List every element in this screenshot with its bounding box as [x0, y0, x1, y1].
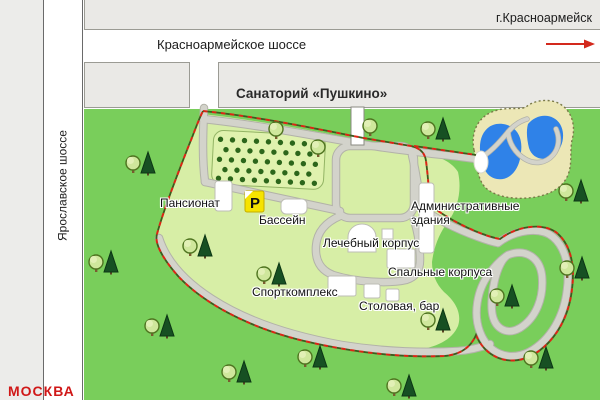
stolovaya-building-1: [364, 284, 380, 298]
forest-area: [84, 109, 600, 400]
orchard-trees: [216, 137, 320, 187]
label-lechebny-korpus: Лечебный корпус: [323, 236, 419, 250]
left-margin: [0, 0, 44, 400]
deciduous-tree: [145, 319, 159, 336]
conifer-tree: [436, 118, 450, 142]
deciduous-tree: [387, 379, 401, 396]
label-admin-line2: здания: [411, 213, 450, 227]
conifer-tree: [505, 285, 519, 309]
city-block-left: [84, 62, 190, 108]
label-admin-line1: Административные: [411, 199, 519, 213]
trees-layer: [89, 118, 589, 399]
deciduous-tree: [126, 156, 140, 173]
resort-title: Санаторий «Пушкино»: [236, 86, 387, 101]
deciduous-tree: [298, 350, 312, 367]
deciduous-tree: [257, 267, 271, 284]
conifer-tree: [237, 361, 251, 385]
deciduous-tree: [559, 184, 573, 201]
label-bassein: Бассейн: [259, 213, 306, 227]
conifer-tree: [272, 263, 286, 287]
pond: [473, 100, 573, 198]
conifer-tree: [104, 251, 118, 275]
deciduous-tree: [421, 122, 435, 139]
label-stolovaya-bar: Столовая, бар: [359, 299, 439, 313]
conifer-tree: [160, 315, 174, 339]
conifer-tree: [575, 257, 589, 281]
deciduous-tree: [421, 313, 435, 330]
sanatorium-territory: [157, 114, 459, 351]
deciduous-tree: [89, 255, 103, 272]
moscow-direction-label: МОСКВА: [8, 383, 75, 399]
deciduous-tree: [524, 351, 538, 368]
krasnoarmeysk-city-label: г.Красноармейск: [496, 11, 592, 25]
conifer-tree: [574, 180, 588, 204]
label-spalnye-korpusa: Спальные корпуса: [388, 265, 492, 279]
parking-sign: P: [245, 191, 264, 212]
city-block-right: [218, 62, 600, 108]
orchard: [211, 130, 326, 190]
pond-water-left: [480, 124, 521, 179]
pond-beach: [474, 151, 488, 173]
conifer-tree: [402, 375, 416, 399]
parking-letter: P: [250, 195, 260, 212]
entrance-road: [351, 107, 364, 145]
deciduous-tree: [222, 365, 236, 382]
yaroslavskoe-highway-label: Ярославское шоссе: [56, 121, 71, 251]
roads: [159, 108, 568, 356]
label-sportkompleks: Спорткомплекс: [252, 285, 338, 299]
conifer-tree: [198, 235, 212, 259]
label-pansionat: Пансионат: [160, 196, 220, 210]
deciduous-tree: [269, 122, 283, 139]
roads-casing: [159, 108, 568, 356]
conifer-tree: [313, 346, 327, 370]
deciduous-tree: [183, 239, 197, 256]
deciduous-tree: [311, 140, 325, 157]
map-screenshot: Ярославское шоссе МОСКВА г.Красноармейск…: [0, 0, 600, 400]
conifer-tree: [539, 347, 553, 371]
direction-arrow: [546, 40, 595, 49]
pond-water-right: [527, 116, 563, 159]
deciduous-tree: [363, 119, 377, 136]
krasnoarmeyskoe-highway-label: Красноармейское шоссе: [157, 37, 306, 52]
conifer-tree: [141, 152, 155, 176]
deciduous-tree: [560, 261, 574, 278]
bassein-building: [281, 199, 307, 214]
deciduous-tree: [490, 289, 504, 306]
